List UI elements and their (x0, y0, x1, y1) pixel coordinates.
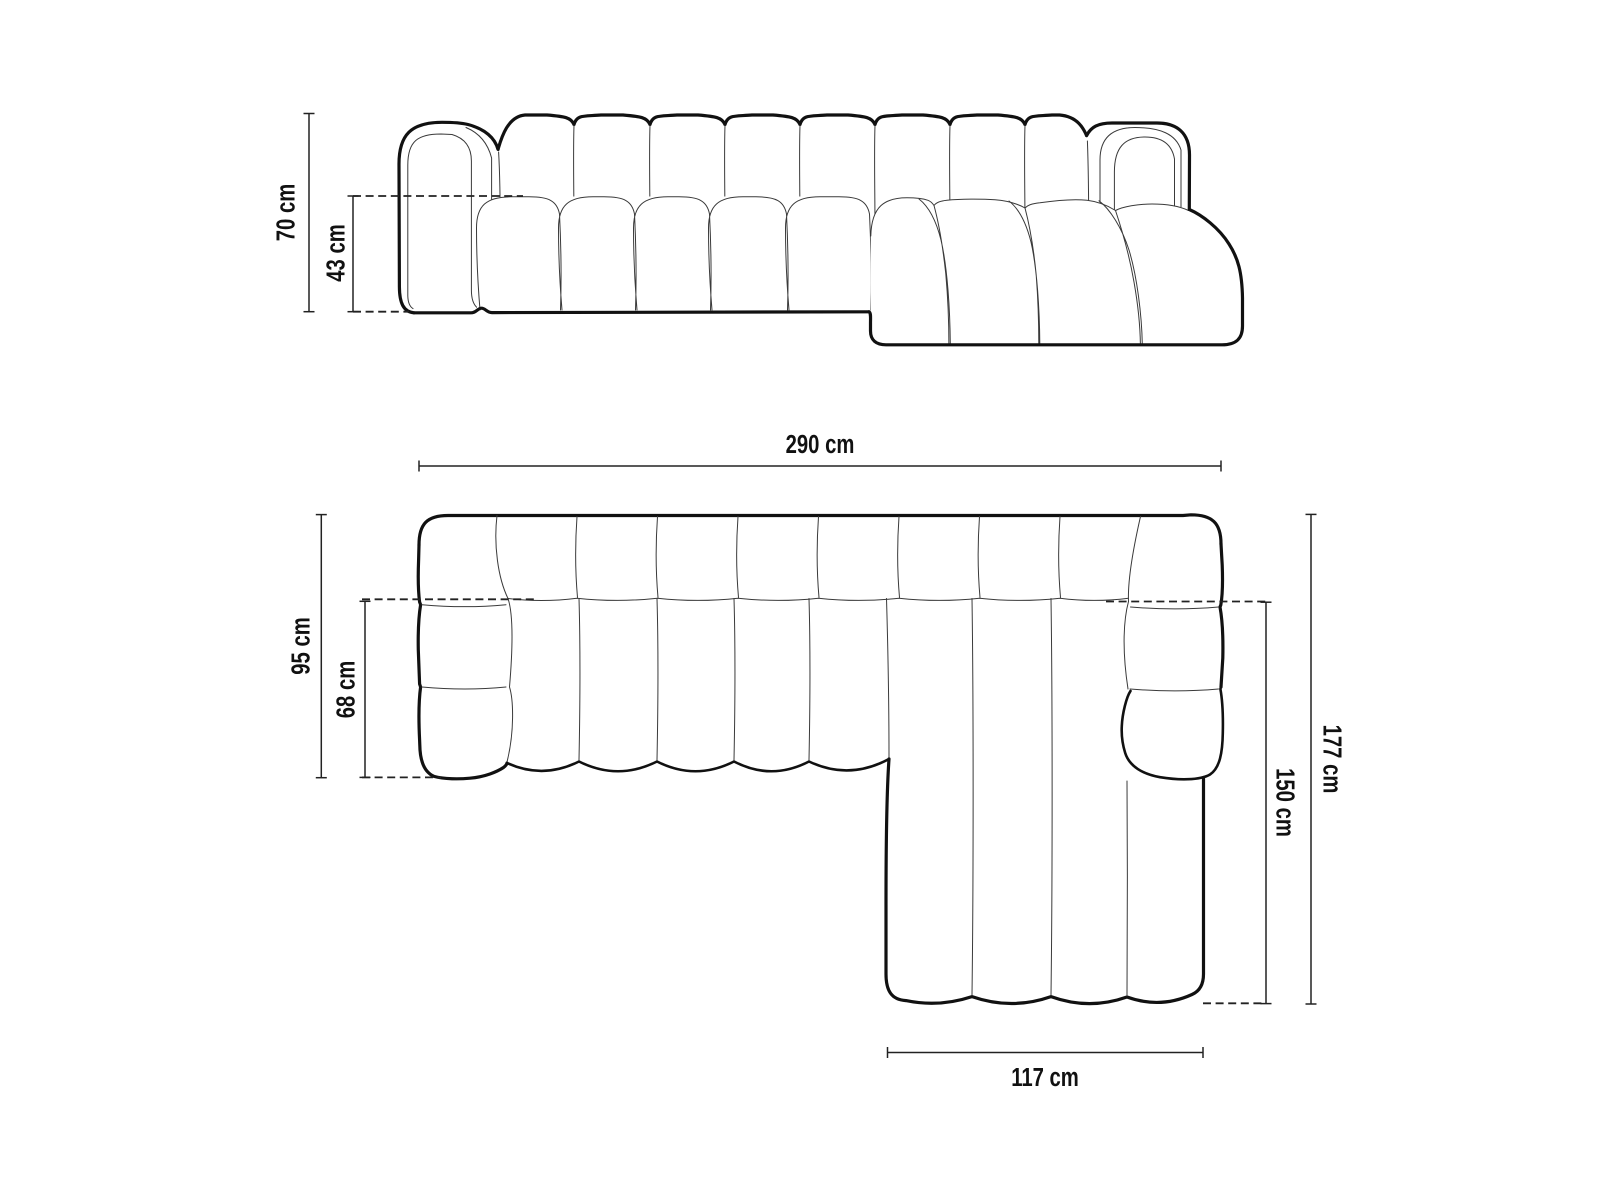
svg-text:70 cm: 70 cm (271, 184, 300, 241)
svg-text:117 cm: 117 cm (1011, 1062, 1079, 1091)
svg-text:95 cm: 95 cm (286, 617, 315, 674)
svg-text:68 cm: 68 cm (331, 661, 360, 718)
svg-text:290 cm: 290 cm (786, 430, 855, 459)
svg-text:43 cm: 43 cm (321, 224, 350, 281)
svg-text:177 cm: 177 cm (1318, 725, 1347, 794)
svg-text:150 cm: 150 cm (1271, 768, 1300, 837)
